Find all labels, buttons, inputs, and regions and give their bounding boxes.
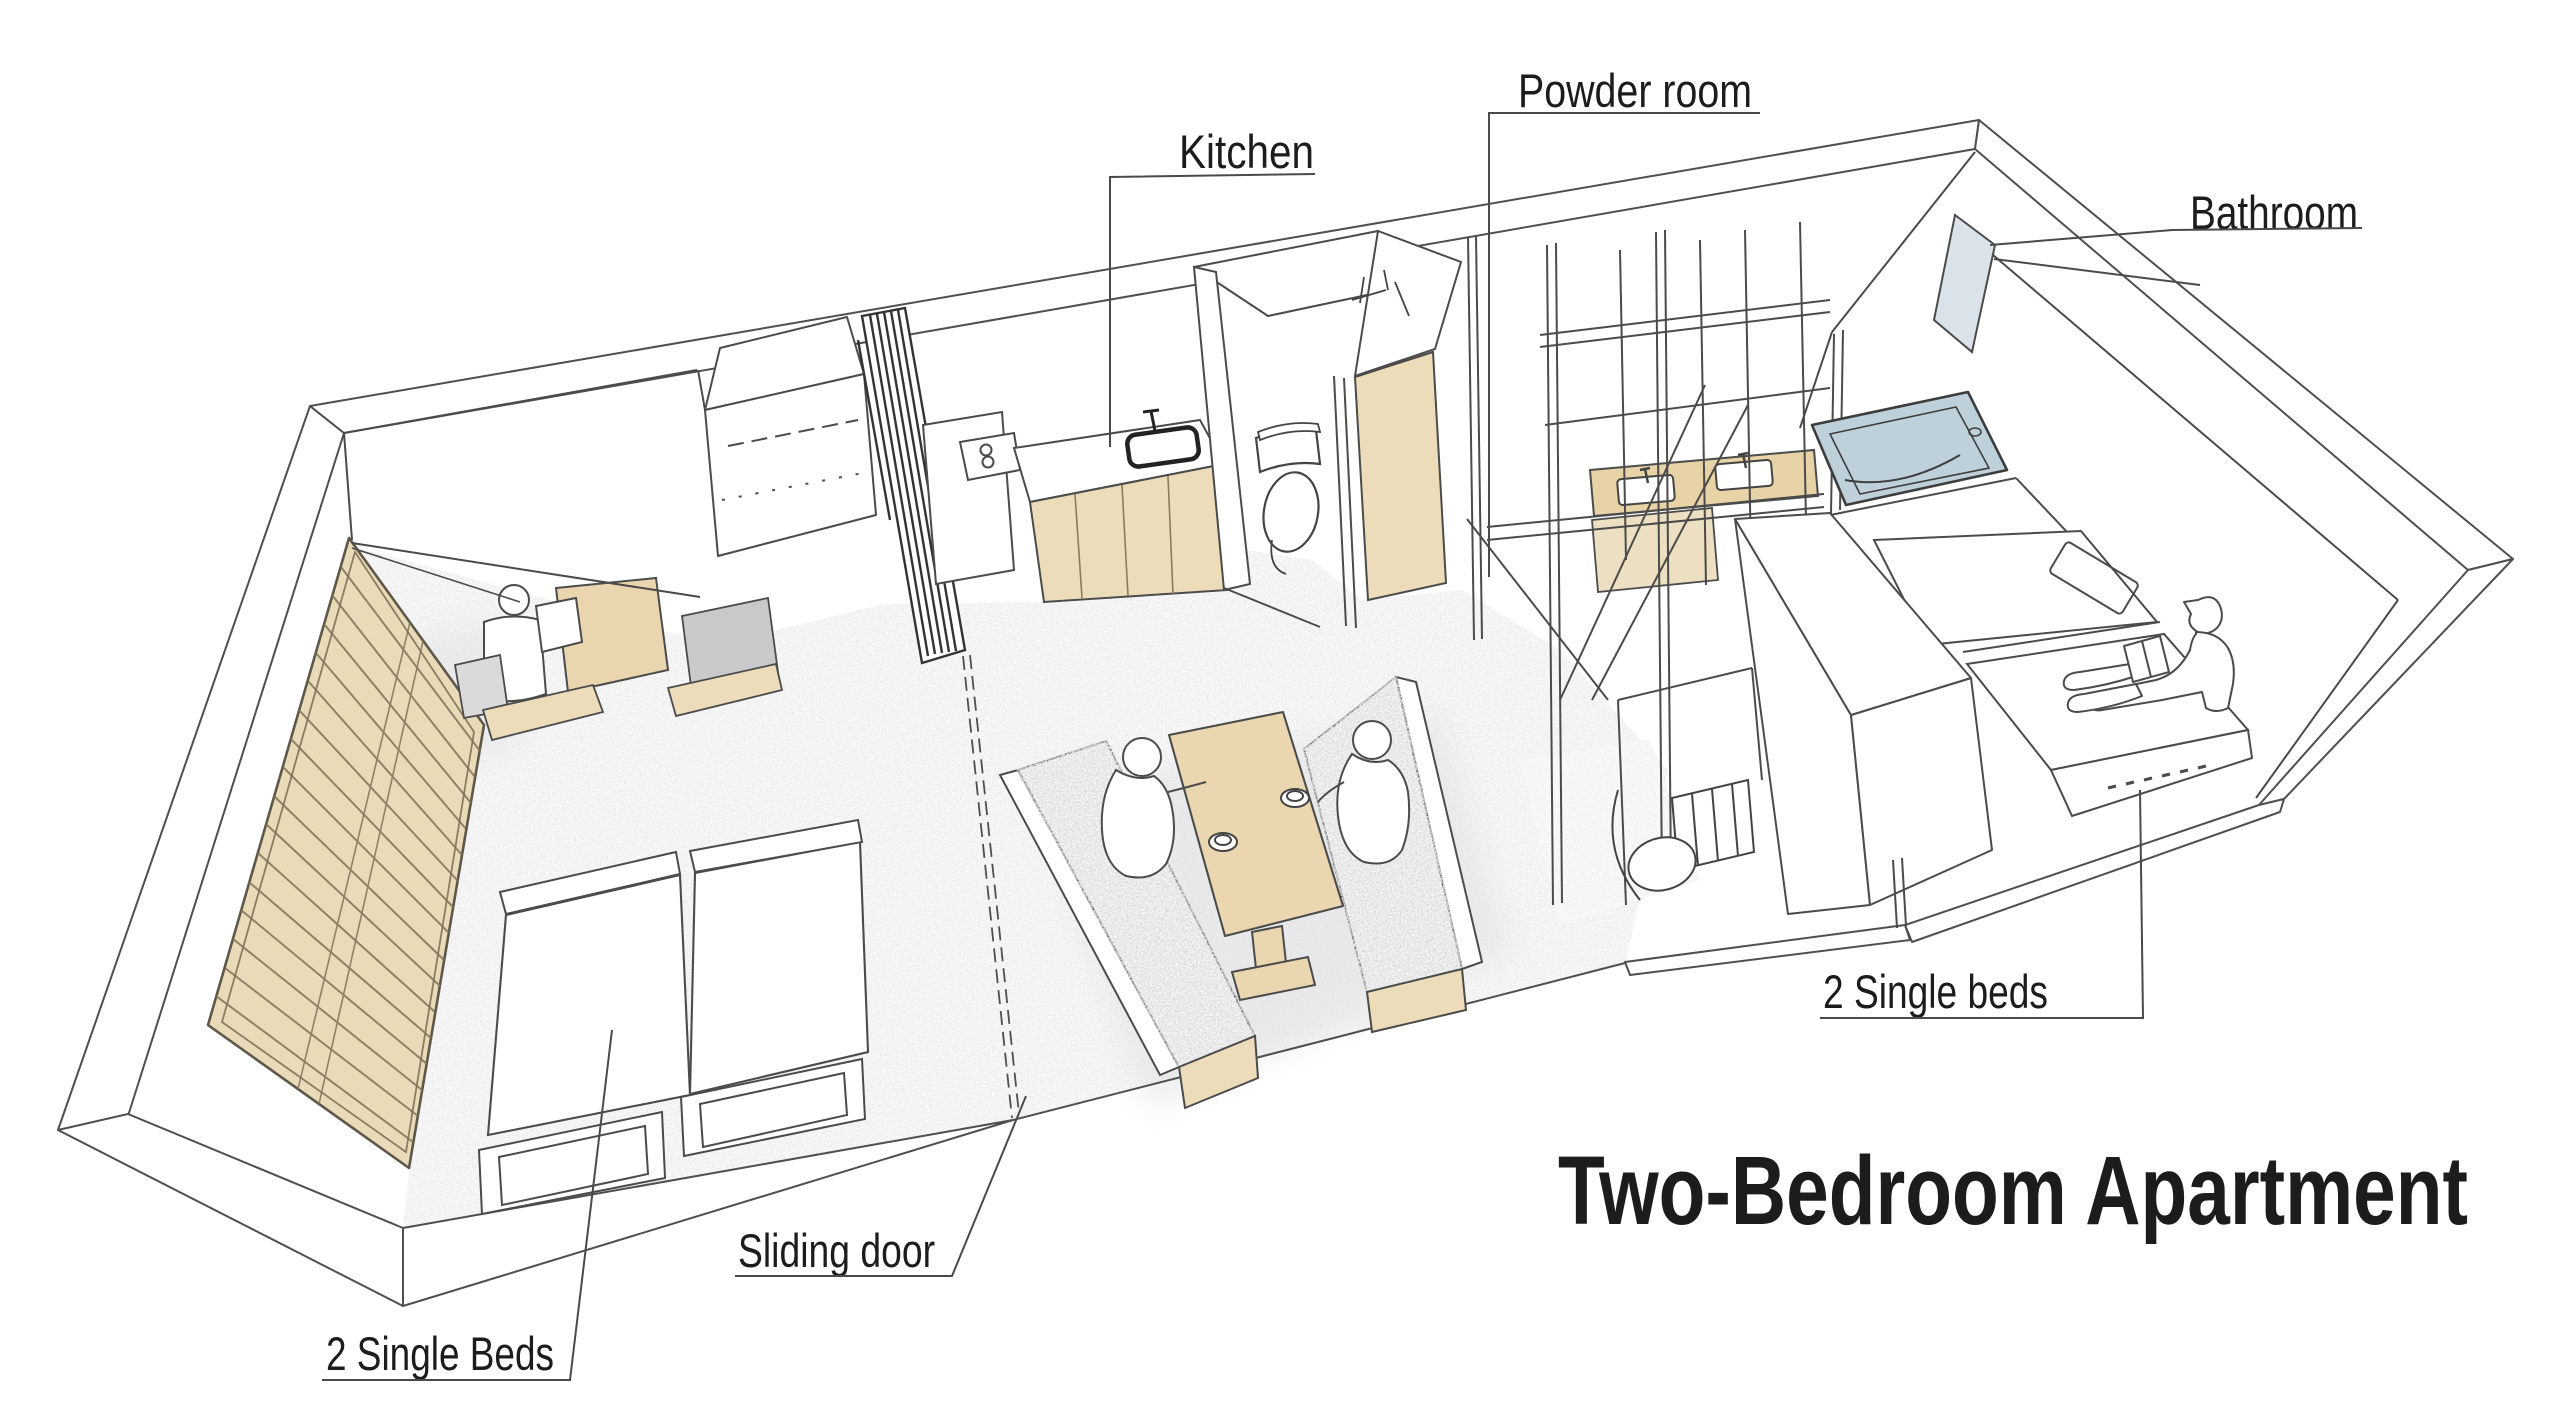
svg-text:Sliding door: Sliding door bbox=[738, 1224, 935, 1277]
svg-text:Kitchen: Kitchen bbox=[1179, 125, 1314, 178]
svg-text:2 Single Beds: 2 Single Beds bbox=[326, 1327, 554, 1380]
svg-text:Bathroom: Bathroom bbox=[2190, 186, 2358, 239]
svg-text:Two-Bedroom Apartment: Two-Bedroom Apartment bbox=[1558, 1136, 2468, 1245]
svg-text:Powder room: Powder room bbox=[1518, 64, 1752, 117]
svg-text:2 Single beds: 2 Single beds bbox=[1823, 965, 2048, 1018]
